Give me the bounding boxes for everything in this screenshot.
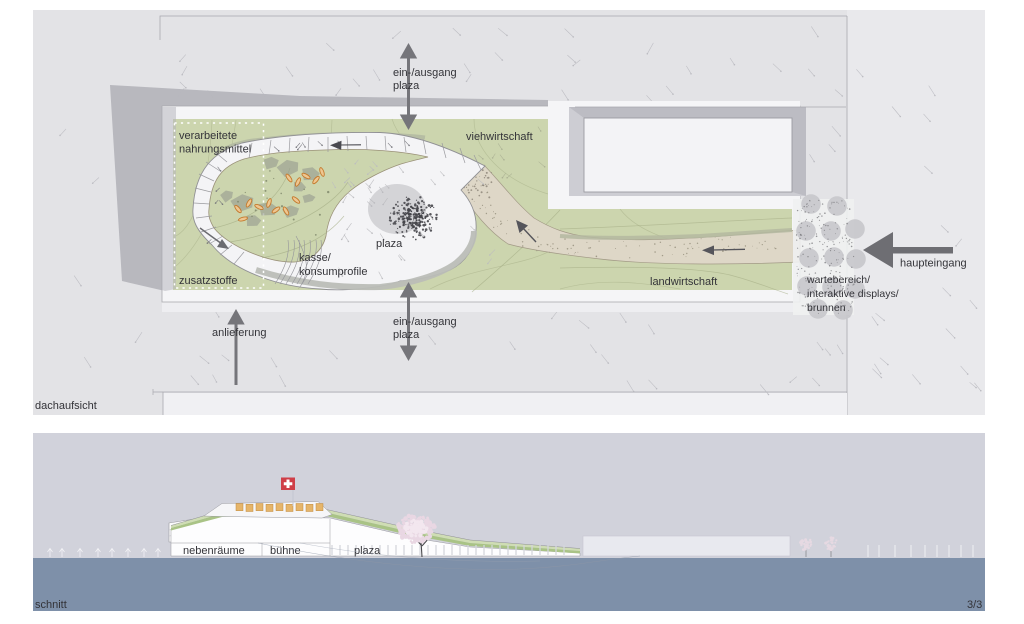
svg-text:plaza: plaza	[354, 545, 381, 557]
svg-text:ein-/ausgang: ein-/ausgang	[393, 67, 457, 79]
svg-text:anlieferung: anlieferung	[212, 327, 266, 339]
svg-text:ein-/ausgang: ein-/ausgang	[393, 316, 457, 328]
svg-text:brunnen: brunnen	[807, 302, 846, 314]
svg-text:landwirtschaft: landwirtschaft	[650, 276, 717, 288]
svg-text:plaza: plaza	[393, 329, 420, 341]
svg-text:nahrungsmittel: nahrungsmittel	[179, 144, 251, 156]
svg-text:dachaufsicht: dachaufsicht	[35, 400, 97, 412]
svg-text:plaza: plaza	[376, 238, 403, 250]
svg-text:viehwirtschaft: viehwirtschaft	[466, 131, 533, 143]
svg-text:konsumprofile: konsumprofile	[299, 266, 367, 278]
svg-text:verarbeitete: verarbeitete	[179, 130, 237, 142]
svg-text:3/3: 3/3	[967, 599, 982, 611]
svg-text:haupteingang: haupteingang	[900, 258, 967, 270]
svg-text:plaza: plaza	[393, 80, 420, 92]
svg-text:nebenräume: nebenräume	[183, 545, 245, 557]
svg-text:bühne: bühne	[270, 545, 301, 557]
svg-text:interaktive displays/: interaktive displays/	[807, 288, 899, 300]
svg-text:zusatzstoffe: zusatzstoffe	[179, 275, 238, 287]
svg-text:kasse/: kasse/	[299, 252, 332, 264]
svg-text:schnitt: schnitt	[35, 599, 67, 611]
svg-text:wartebereich/: wartebereich/	[806, 274, 870, 286]
